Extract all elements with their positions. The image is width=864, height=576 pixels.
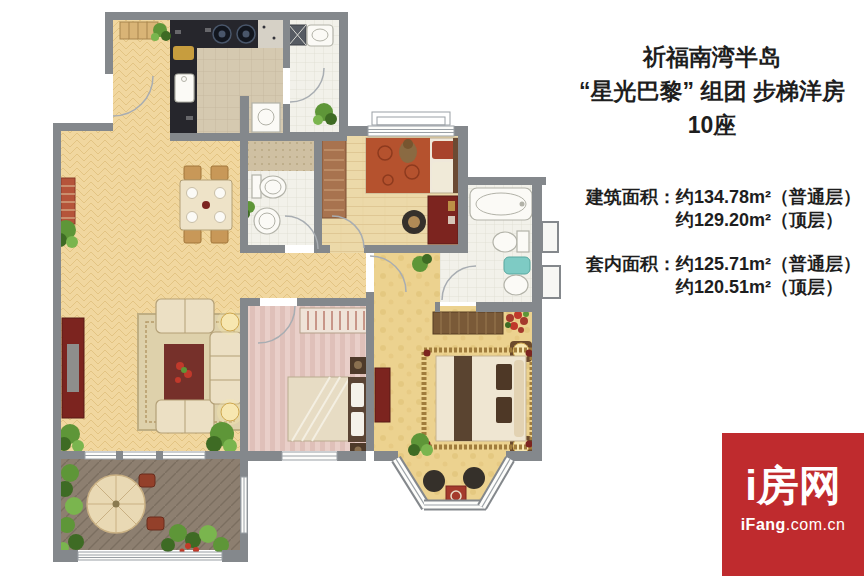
corner-lamp [221,403,239,421]
balcony-plants [61,464,79,482]
project-title: 祈福南湾半岛 “星光巴黎” 组团 步梯洋房 10座 [560,40,864,142]
bay-chair [423,470,445,492]
vanity [504,257,530,274]
headboard [453,138,458,193]
dining-chair [184,166,201,180]
red-pillow [432,141,456,159]
bolster [514,360,524,437]
tv-screen [67,344,79,392]
logo-domain-rest: .com.cn [786,516,846,533]
balcony-railing [78,552,222,560]
pink-bedroom [288,308,370,457]
bathroom1-sink [307,25,333,46]
shower-area [248,141,314,171]
building-area-label: 建筑面积： [586,187,676,207]
pillow [496,397,512,423]
console-shelf [61,178,75,224]
kitchen-basket [173,46,194,60]
window-bay-steps [372,112,450,125]
wardrobe [322,140,346,218]
pillow [351,412,364,436]
study-window [368,126,454,136]
area-info: 建筑面积：约134.78m²（普通层） 约129.20m²（顶层） 套内面积：约… [586,186,861,299]
dining-chair [211,166,228,180]
building-number: 10座 [560,108,864,142]
master-bed [436,356,526,441]
pillow [496,364,512,390]
flower-decor [506,314,514,322]
building-area-normal: 约134.78m²（普通层） [676,187,861,207]
dining-chair [184,229,201,243]
orange-duvet [366,138,430,193]
project-name: 祈福南湾半岛 [560,40,864,74]
inner-area-label: 套内面积： [586,254,676,274]
logo-domain: iFang.com.cn [722,516,864,534]
inner-area-top: 约120.51m²（顶层） [586,276,861,299]
patio-chair [139,474,155,487]
bath-vestibule-floor [440,253,468,302]
kitchen-marble-top [258,20,283,48]
floor-plan-page: 祈福南湾半岛 “星光巴黎” 组团 步梯洋房 10座 建筑面积：约134.78m²… [0,0,864,576]
corridor-floor [240,253,366,298]
corner-lamp [221,313,239,331]
entry-hall [120,22,171,41]
inner-area-row: 套内面积：约125.71m²（普通层） [586,253,861,276]
toilet-tank [517,231,529,252]
room-floors [61,20,532,550]
building-area-top: 约129.20m²（顶层） [586,209,861,232]
building-area-row: 建筑面积：约134.78m²（普通层） [586,186,861,209]
pillow [351,383,364,407]
washing-machine [252,103,280,132]
project-subtitle: “星光巴黎” 组团 步梯洋房 [560,74,864,108]
guest-sink [254,208,280,234]
toilet-bowl [493,232,517,252]
ac-platform [542,266,560,298]
patio-chair [147,517,164,530]
bed-runner [454,356,472,441]
chaise-sofa [210,332,242,404]
kitchen-sink [175,74,194,102]
logo-domain-bold: iFang [741,516,786,533]
toilet-bowl [260,176,286,198]
pink-wardrobe [300,308,370,333]
white-blanket [432,162,456,190]
ac-platform [542,222,558,252]
logo-brand-text: i房网 [722,463,864,509]
inner-area-normal: 约125.71m²（普通层） [676,254,861,274]
tv-cabinet [375,368,390,422]
dining-chair [211,229,228,243]
site-logo: i房网 iFang.com.cn [722,433,864,576]
pedestal-sink [504,275,528,295]
